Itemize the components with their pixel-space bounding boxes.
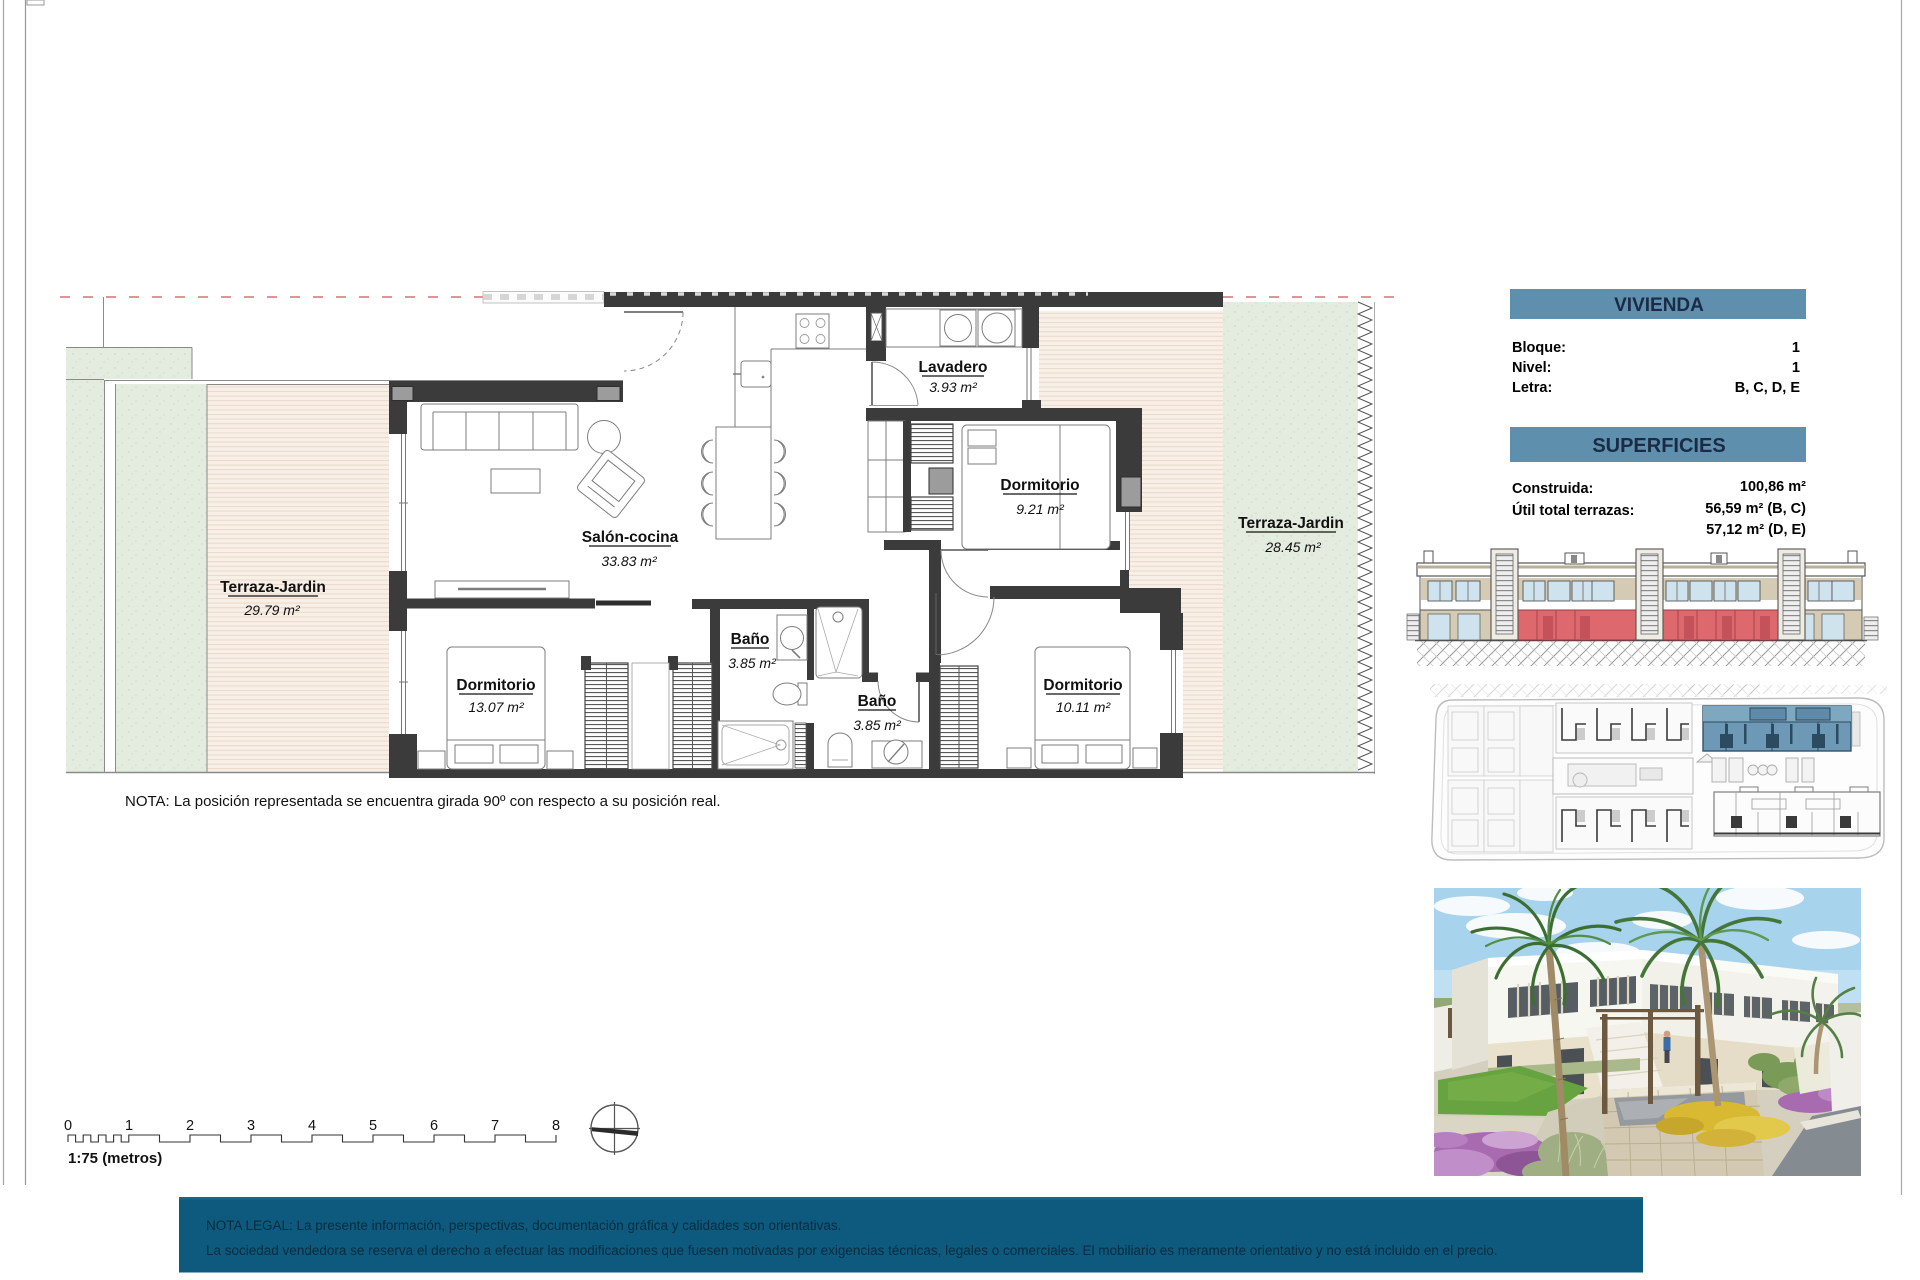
svg-text:SUPERFICIES: SUPERFICIES: [1592, 435, 1725, 457]
svg-text:56,59 m² (B, C): 56,59 m² (B, C): [1705, 501, 1806, 517]
svg-text:La sociedad vendedora se reser: La sociedad vendedora se reserva el dere…: [206, 1243, 1497, 1258]
svg-text:13.07 m²: 13.07 m²: [468, 699, 525, 715]
svg-text:Bloque:: Bloque:: [1512, 340, 1566, 356]
svg-text:10.11 m²: 10.11 m²: [1056, 699, 1112, 715]
svg-text:4: 4: [308, 1118, 316, 1134]
svg-text:100,86 m²: 100,86 m²: [1740, 479, 1806, 495]
svg-text:1: 1: [1792, 360, 1800, 376]
svg-text:2: 2: [186, 1118, 194, 1134]
svg-text:33.83 m²: 33.83 m²: [601, 553, 658, 569]
svg-text:6: 6: [430, 1118, 438, 1134]
svg-text:Lavadero: Lavadero: [919, 359, 988, 376]
svg-text:B, C, D, E: B, C, D, E: [1735, 380, 1801, 396]
svg-text:Terraza-Jardin: Terraza-Jardin: [220, 579, 326, 596]
svg-text:NOTA LEGAL: La presente inform: NOTA LEGAL: La presente información, per…: [206, 1218, 841, 1233]
svg-text:NOTA: La posición representada: NOTA: La posición representada se encuen…: [125, 793, 721, 810]
svg-text:3.85 m²: 3.85 m²: [853, 717, 902, 733]
svg-text:5: 5: [369, 1118, 377, 1134]
svg-text:57,12 m² (D, E): 57,12 m² (D, E): [1706, 522, 1806, 538]
svg-text:1:75 (metros): 1:75 (metros): [68, 1150, 162, 1167]
svg-text:3.85 m²: 3.85 m²: [728, 655, 777, 671]
svg-text:28.45 m²: 28.45 m²: [1264, 539, 1322, 555]
svg-text:Salón-cocina: Salón-cocina: [582, 529, 679, 546]
svg-text:3.93 m²: 3.93 m²: [929, 379, 978, 395]
svg-text:Nivel:: Nivel:: [1512, 360, 1552, 376]
svg-text:7: 7: [491, 1118, 499, 1134]
svg-text:1: 1: [1792, 340, 1800, 356]
svg-text:Baño: Baño: [731, 631, 770, 648]
svg-text:VIVIENDA: VIVIENDA: [1614, 295, 1704, 316]
svg-text:8: 8: [552, 1118, 560, 1134]
svg-text:9.21 m²: 9.21 m²: [1016, 501, 1065, 517]
svg-text:Dormitorio: Dormitorio: [1043, 677, 1122, 694]
svg-text:Dormitorio: Dormitorio: [1000, 477, 1079, 494]
svg-text:29.79 m²: 29.79 m²: [243, 602, 301, 618]
svg-text:Construida:: Construida:: [1512, 481, 1593, 497]
svg-text:Terraza-Jardin: Terraza-Jardin: [1238, 515, 1344, 532]
svg-text:Baño: Baño: [858, 693, 897, 710]
svg-text:1: 1: [125, 1118, 133, 1134]
svg-text:0: 0: [64, 1118, 72, 1134]
svg-text:Dormitorio: Dormitorio: [456, 677, 535, 694]
svg-text:Útil total terrazas:: Útil total terrazas:: [1512, 501, 1634, 519]
svg-text:3: 3: [247, 1118, 255, 1134]
svg-text:Letra:: Letra:: [1512, 380, 1552, 396]
